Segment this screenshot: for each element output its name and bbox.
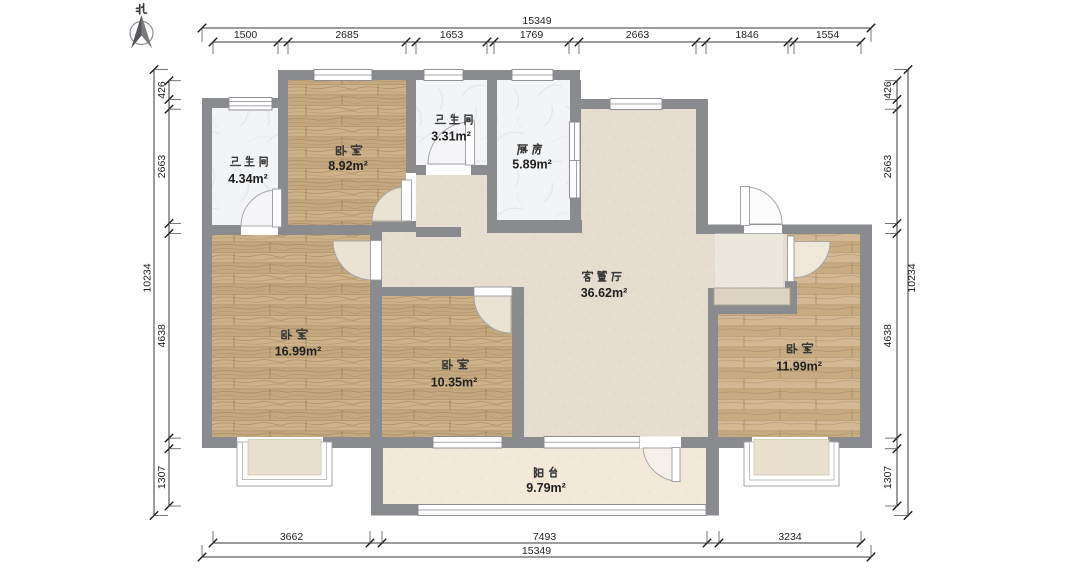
- svg-text:1554: 1554: [816, 29, 840, 41]
- svg-text:2663: 2663: [156, 155, 168, 179]
- svg-text:1653: 1653: [440, 29, 464, 41]
- svg-text:10.35m²: 10.35m²: [431, 376, 478, 390]
- svg-text:1846: 1846: [735, 29, 759, 41]
- svg-text:15349: 15349: [522, 545, 551, 557]
- svg-text:9.79m²: 9.79m²: [526, 481, 566, 495]
- svg-text:4638: 4638: [882, 324, 894, 348]
- svg-text:4638: 4638: [156, 324, 168, 348]
- svg-text:2685: 2685: [335, 29, 359, 41]
- svg-text:1500: 1500: [234, 29, 258, 41]
- svg-text:426: 426: [882, 81, 894, 99]
- svg-text:426: 426: [156, 81, 168, 99]
- svg-text:36.62m²: 36.62m²: [581, 286, 628, 300]
- svg-text:16.99m²: 16.99m²: [275, 345, 322, 359]
- svg-text:5.89m²: 5.89m²: [512, 158, 552, 172]
- svg-text:8.92m²: 8.92m²: [328, 159, 368, 173]
- svg-text:7493: 7493: [533, 531, 557, 543]
- svg-text:15349: 15349: [522, 15, 551, 27]
- svg-text:4.34m²: 4.34m²: [228, 172, 268, 186]
- svg-text:2663: 2663: [882, 155, 894, 179]
- svg-text:10234: 10234: [906, 263, 918, 292]
- svg-text:3234: 3234: [778, 531, 802, 543]
- svg-text:3662: 3662: [280, 531, 304, 543]
- svg-text:10234: 10234: [142, 263, 154, 292]
- svg-text:11.99m²: 11.99m²: [776, 360, 822, 374]
- svg-text:1769: 1769: [520, 29, 544, 41]
- svg-text:2663: 2663: [626, 29, 650, 41]
- svg-text:1307: 1307: [882, 466, 894, 490]
- svg-text:3.31m²: 3.31m²: [431, 130, 471, 144]
- svg-text:1307: 1307: [156, 466, 168, 490]
